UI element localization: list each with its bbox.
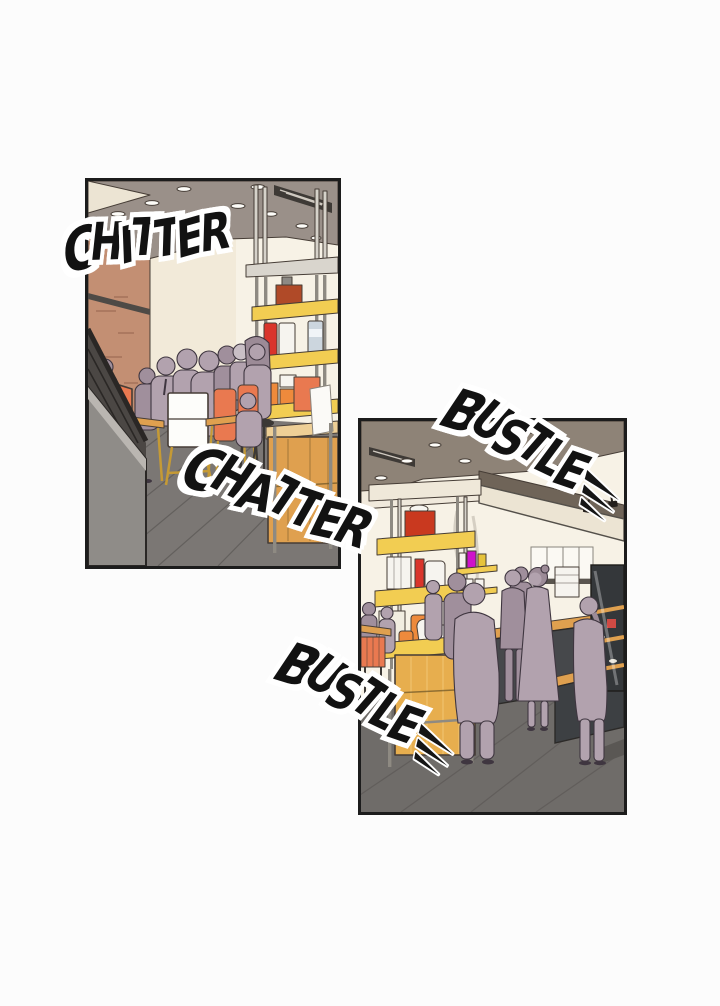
sfx-letter: H: [88, 216, 123, 269]
sfx-letter: T: [153, 211, 178, 267]
comic-page: { "page": { "background": "#fcfcfc" }, "…: [0, 0, 720, 1006]
sfx-letter: R: [199, 205, 227, 261]
sfx-letter: E: [176, 210, 201, 267]
